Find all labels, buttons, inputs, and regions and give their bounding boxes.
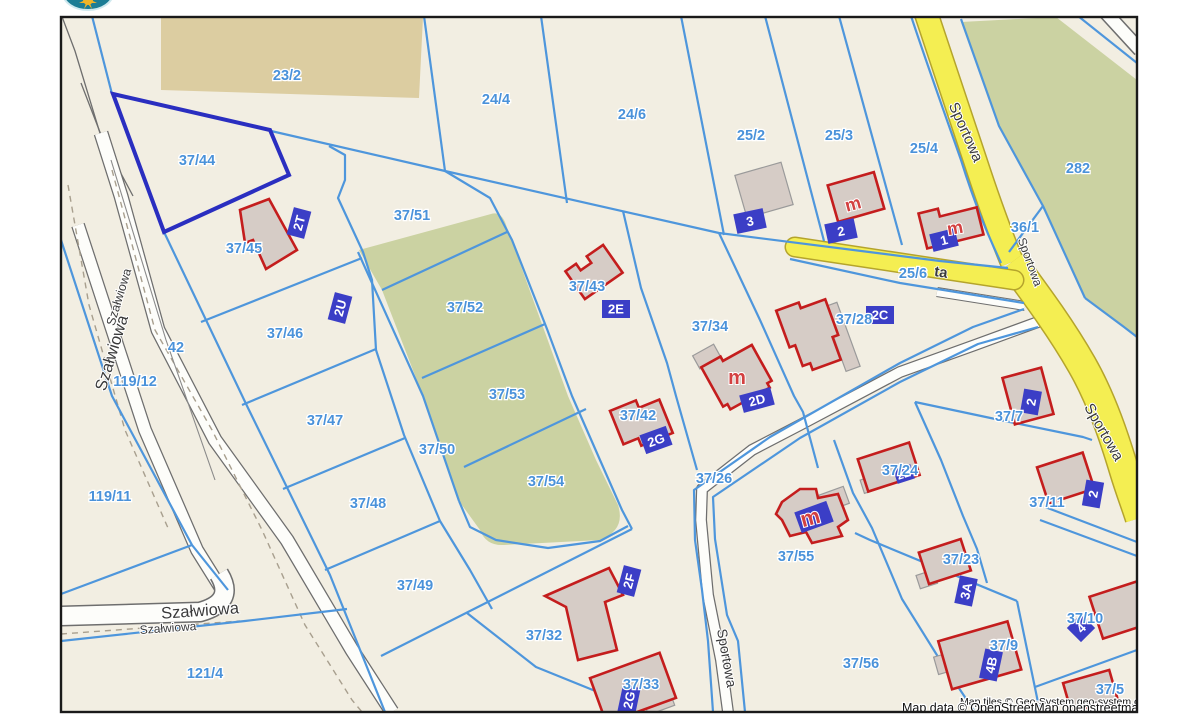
svg-text:37/11: 37/11 — [1029, 495, 1065, 511]
svg-text:37/45: 37/45 — [226, 241, 262, 257]
svg-text:37/34: 37/34 — [692, 319, 728, 335]
svg-text:37/51: 37/51 — [394, 208, 430, 224]
svg-text:2C: 2C — [872, 308, 889, 323]
svg-text:25/4: 25/4 — [910, 141, 938, 157]
svg-text:24/6: 24/6 — [618, 107, 646, 123]
svg-text:37/49: 37/49 — [397, 578, 433, 594]
svg-text:37/26: 37/26 — [696, 471, 732, 487]
svg-text:25/2: 25/2 — [737, 128, 765, 144]
svg-text:36/1: 36/1 — [1011, 220, 1039, 236]
svg-text:24/4: 24/4 — [482, 92, 510, 108]
svg-text:37/43: 37/43 — [569, 279, 605, 295]
svg-text:m: m — [728, 367, 746, 389]
svg-text:37/33: 37/33 — [623, 677, 659, 693]
svg-text:37/47: 37/47 — [307, 413, 343, 429]
svg-text:37/56: 37/56 — [843, 656, 879, 672]
svg-text:37/32: 37/32 — [526, 628, 562, 644]
svg-text:37/23: 37/23 — [943, 552, 979, 568]
svg-text:2E: 2E — [608, 302, 624, 317]
svg-text:25/6: 25/6 — [899, 266, 927, 282]
svg-text:37/24: 37/24 — [882, 463, 918, 479]
svg-text:37/53: 37/53 — [489, 387, 525, 403]
svg-text:m: m — [945, 217, 964, 239]
svg-text:119/12: 119/12 — [113, 374, 157, 390]
svg-text:37/52: 37/52 — [447, 300, 483, 316]
svg-text:37/7: 37/7 — [995, 409, 1023, 425]
svg-text:37/9: 37/9 — [990, 638, 1018, 654]
svg-text:37/50: 37/50 — [419, 442, 455, 458]
svg-text:282: 282 — [1066, 161, 1090, 177]
svg-text:25/3: 25/3 — [825, 128, 853, 144]
svg-text:23/2: 23/2 — [273, 68, 301, 84]
svg-text:121/4: 121/4 — [187, 666, 223, 682]
svg-text:37/54: 37/54 — [528, 474, 564, 490]
svg-text:119/11: 119/11 — [89, 489, 132, 505]
svg-text:37/28: 37/28 — [836, 312, 872, 328]
svg-text:37/44: 37/44 — [179, 153, 215, 169]
svg-text:37/55: 37/55 — [778, 549, 814, 565]
svg-text:37/48: 37/48 — [350, 496, 386, 512]
svg-text:37/46: 37/46 — [267, 326, 303, 342]
svg-text:42: 42 — [168, 340, 184, 356]
svg-text:37/42: 37/42 — [620, 408, 656, 424]
svg-text:37/10: 37/10 — [1067, 611, 1103, 627]
